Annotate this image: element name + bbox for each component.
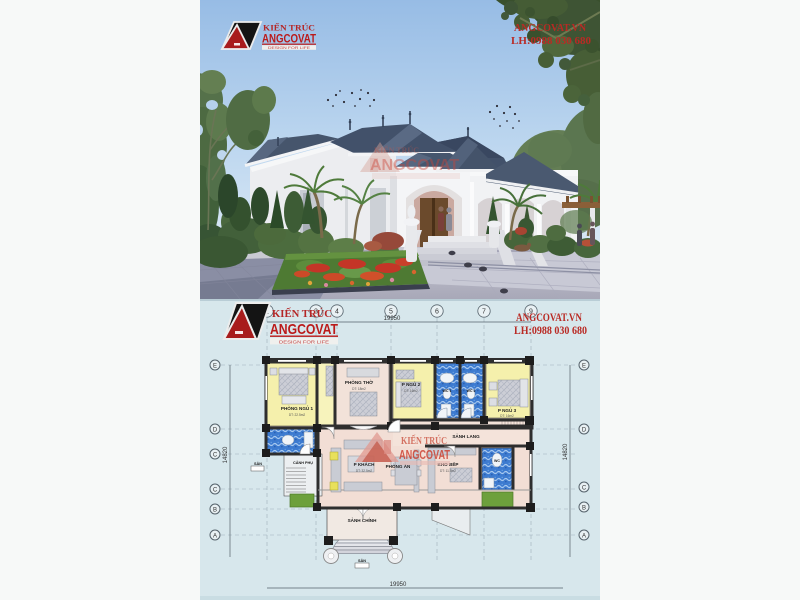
svg-text:DESIGN FOR LIFE: DESIGN FOR LIFE xyxy=(279,339,329,345)
svg-text:B: B xyxy=(213,508,217,514)
svg-text:ANGCOVAT: ANGCOVAT xyxy=(270,321,338,338)
svg-text:E: E xyxy=(213,364,217,370)
svg-text:ANGCOVAT: ANGCOVAT xyxy=(262,32,317,46)
svg-text:ANGCOVAT.VN: ANGCOVAT.VN xyxy=(516,312,583,324)
svg-text:KIẾN TRÚC: KIẾN TRÚC xyxy=(401,434,447,447)
svg-text:SẢNH LANG: SẢNH LANG xyxy=(452,433,480,439)
svg-text:B: B xyxy=(582,506,586,512)
svg-text:LH:0988 030 680: LH:0988 030 680 xyxy=(514,325,587,337)
svg-text:E: E xyxy=(582,364,586,370)
svg-text:14820: 14820 xyxy=(563,443,569,460)
svg-text:C: C xyxy=(582,486,587,492)
svg-text:D: D xyxy=(213,428,218,434)
svg-text:DT: 16m2: DT: 16m2 xyxy=(404,389,418,393)
svg-text:ANGCOVAT.VN: ANGCOVAT.VN xyxy=(514,22,586,34)
svg-text:4: 4 xyxy=(335,309,339,316)
svg-text:SẢNH CHÍNH: SẢNH CHÍNH xyxy=(348,516,378,523)
svg-text:ANGCOVAT: ANGCOVAT xyxy=(370,157,459,174)
svg-text:C: C xyxy=(213,488,218,494)
svg-text:A: A xyxy=(213,534,217,540)
svg-text:A: A xyxy=(582,534,586,540)
svg-text:PHÒNG THỜ: PHÒNG THỜ xyxy=(345,378,373,385)
svg-text:ANGCOVAT: ANGCOVAT xyxy=(399,447,450,462)
svg-text:KIẾN TRÚC: KIẾN TRÚC xyxy=(272,307,332,320)
svg-text:DESIGN FOR LIFE: DESIGN FOR LIFE xyxy=(268,46,311,50)
svg-text:DT: 11.5m2: DT: 11.5m2 xyxy=(440,469,456,473)
svg-text:WC 1: WC 1 xyxy=(443,389,452,393)
svg-text:WC 2: WC 2 xyxy=(467,389,476,393)
svg-text:DT: 16m2: DT: 16m2 xyxy=(500,414,514,418)
svg-text:LH:0988 030 680: LH:0988 030 680 xyxy=(511,35,591,47)
svg-text:SÂN: SÂN xyxy=(358,558,366,563)
svg-text:DT: 22.5m2: DT: 22.5m2 xyxy=(289,413,306,417)
svg-text:WC: WC xyxy=(494,459,500,463)
svg-text:DT: 32.5m2: DT: 32.5m2 xyxy=(356,469,373,473)
svg-text:P NGỦ 2: P NGỦ 2 xyxy=(402,381,421,387)
svg-text:C: C xyxy=(213,453,218,459)
svg-text:DT: 18m2: DT: 18m2 xyxy=(352,387,366,391)
svg-text:KIẾN TRÚC: KIẾN TRÚC xyxy=(374,145,419,155)
svg-text:D: D xyxy=(582,428,587,434)
svg-text:19950: 19950 xyxy=(390,582,407,588)
svg-text:SÂN: SÂN xyxy=(254,461,262,466)
svg-text:P NGỦ 3: P NGỦ 3 xyxy=(498,407,517,413)
svg-text:5: 5 xyxy=(389,309,393,316)
svg-text:PHÒNG NGỦ 1: PHÒNG NGỦ 1 xyxy=(281,404,314,411)
svg-text:CẢNH PHỤ: CẢNH PHỤ xyxy=(293,460,313,465)
svg-text:19950: 19950 xyxy=(384,316,401,322)
svg-text:6: 6 xyxy=(435,309,439,316)
svg-text:14820: 14820 xyxy=(223,446,229,463)
svg-text:7: 7 xyxy=(482,309,486,316)
